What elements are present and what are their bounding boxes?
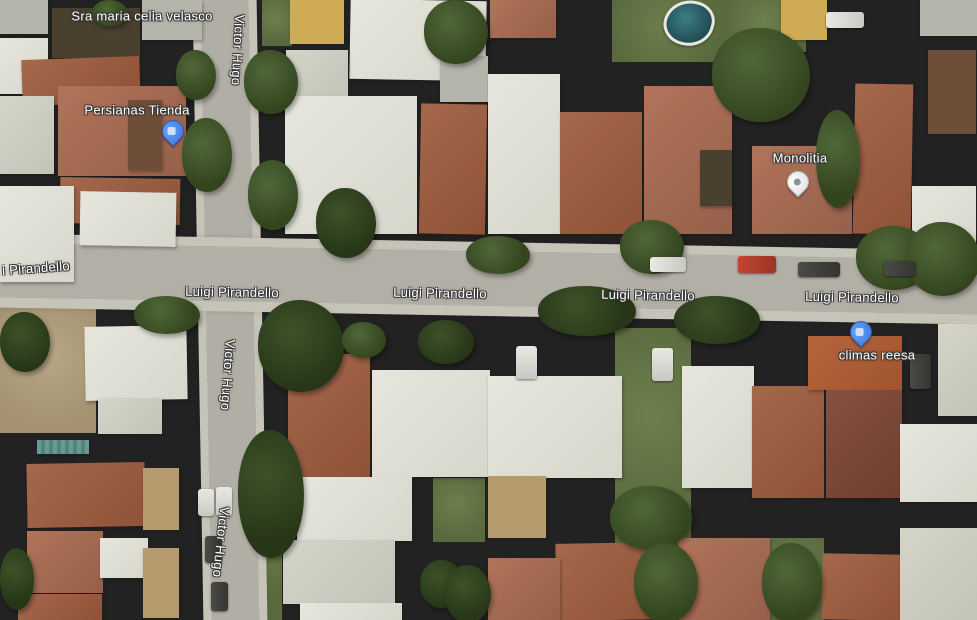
building-roof xyxy=(938,324,977,416)
street-label-luigi-pirandello-3: Luigi Pirandello xyxy=(601,287,695,304)
car xyxy=(652,348,673,381)
car xyxy=(516,346,537,379)
building-roof xyxy=(98,398,162,434)
place-label-climas-reesa[interactable]: climas reesa xyxy=(839,348,916,363)
car xyxy=(826,12,864,28)
tree xyxy=(176,50,216,100)
tree xyxy=(445,565,491,620)
building-roof xyxy=(900,528,977,620)
tree xyxy=(238,430,304,558)
car xyxy=(798,262,840,277)
lawn xyxy=(262,0,292,46)
building-roof xyxy=(900,424,977,502)
building-roof xyxy=(290,0,344,44)
building-roof xyxy=(27,531,103,593)
solar-panel-roof xyxy=(37,440,89,454)
car xyxy=(211,582,228,611)
building-roof xyxy=(488,376,622,478)
tree xyxy=(610,486,692,550)
street-label-luigi-pirandello-4: Luigi Pirandello xyxy=(805,289,899,306)
tree xyxy=(424,0,488,64)
building-roof xyxy=(560,112,642,234)
tree xyxy=(762,543,822,620)
building-roof xyxy=(372,370,490,477)
building-roof xyxy=(300,603,402,620)
place-label-velasco[interactable]: Sra maria celia velasco xyxy=(71,9,212,24)
car xyxy=(650,257,686,272)
building-roof xyxy=(682,366,754,488)
building-roof xyxy=(826,390,902,498)
tree xyxy=(0,312,50,372)
building-roof xyxy=(920,0,977,36)
tree xyxy=(316,188,376,258)
building-roof xyxy=(821,553,902,620)
tree xyxy=(906,222,977,296)
tree xyxy=(244,50,298,114)
street-label-luigi-pirandello-1: Luigi Pirandello xyxy=(185,284,279,301)
place-label-monolitia[interactable]: Monolitia xyxy=(773,151,828,166)
building-roof xyxy=(853,84,914,235)
car xyxy=(738,256,776,273)
building-roof xyxy=(80,191,177,247)
building-roof xyxy=(143,468,179,530)
tree xyxy=(418,320,474,364)
car xyxy=(198,489,214,516)
tree xyxy=(182,118,232,192)
building-roof xyxy=(297,477,412,541)
satellite-map[interactable]: Sra maria celia velasco Persianas Tienda… xyxy=(0,0,977,620)
building-roof xyxy=(928,50,976,134)
tree xyxy=(466,236,530,274)
building-roof xyxy=(0,96,54,174)
car xyxy=(884,261,916,276)
tree xyxy=(634,543,698,620)
building-roof xyxy=(781,0,827,40)
tree xyxy=(134,296,200,334)
building-roof xyxy=(488,476,546,538)
tree xyxy=(712,28,810,122)
building-roof xyxy=(419,103,487,234)
place-label-persianas-tienda[interactable]: Persianas Tienda xyxy=(84,103,189,118)
tree xyxy=(342,322,386,358)
garden xyxy=(433,478,485,542)
street-label-luigi-pirandello-2: Luigi Pirandello xyxy=(393,285,487,302)
building-roof xyxy=(808,336,902,390)
building-roof xyxy=(26,462,145,528)
building-roof xyxy=(143,548,179,618)
building-roof xyxy=(488,558,560,620)
building-roof xyxy=(488,74,560,234)
building-roof xyxy=(84,325,187,401)
building-roof xyxy=(100,538,148,578)
hedge xyxy=(258,300,344,392)
building-roof xyxy=(752,386,824,498)
tree xyxy=(0,548,34,610)
building-roof xyxy=(283,540,395,604)
building-roof xyxy=(700,150,732,206)
building-roof xyxy=(0,0,48,34)
tree xyxy=(248,160,298,230)
building-roof xyxy=(490,0,556,38)
